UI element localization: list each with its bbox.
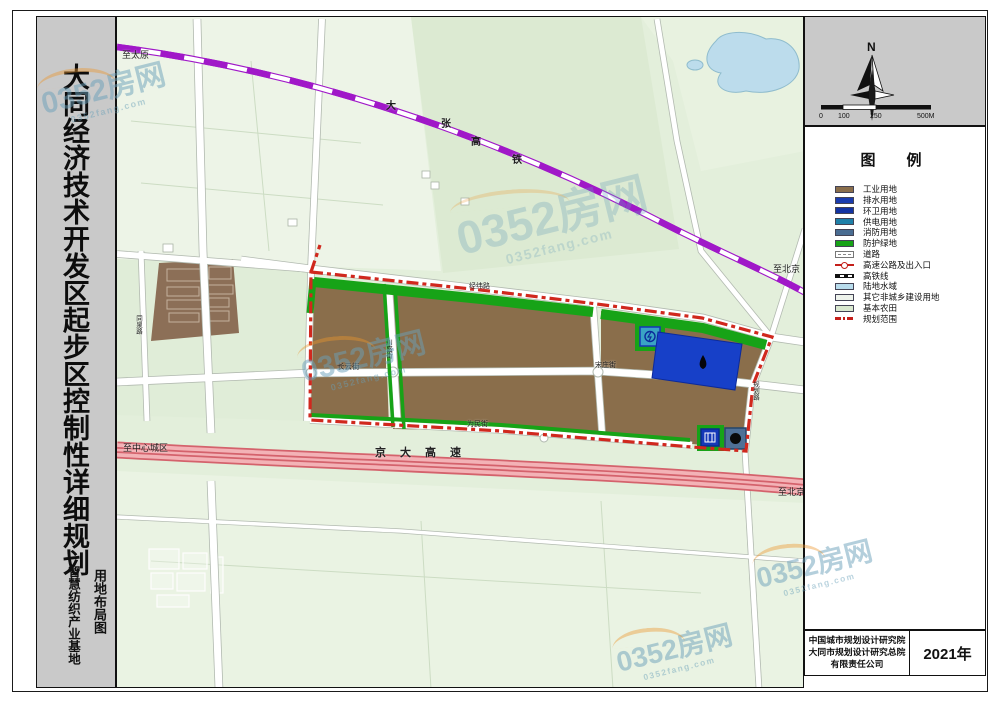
page-title: 大同经济技术开发区起步区控制性详细规划: [55, 63, 94, 576]
label-to-taiyuan: 至太原: [122, 51, 149, 60]
label-road-guihua: 规划路: [751, 381, 758, 401]
label-railway-char: 高: [471, 138, 481, 148]
legend-row: 道路: [805, 249, 985, 260]
legend-row: 规划范围: [805, 314, 985, 325]
farmland-swatch: [835, 305, 854, 312]
drainage-swatch: [835, 197, 854, 204]
power-swatch: [835, 218, 854, 225]
legend-row: 高铁线: [805, 270, 985, 281]
legend-row: 高速公路及出入口: [805, 260, 985, 271]
water-swatch: [835, 283, 854, 290]
legend-panel: 图 例 工业用地 排水用地 环卫用地 供电用地 消防用地 防护绿地 道路 高速公…: [804, 126, 986, 630]
village-block: [151, 259, 239, 341]
fire-parcel: [725, 428, 746, 449]
road-swatch: [835, 251, 854, 258]
legend-row: 排水用地: [805, 195, 985, 206]
label-road-tongquan: 同泉路: [134, 315, 141, 335]
plan-sheet: 大同经济技术开发区起步区控制性详细规划 智慧纺织产业基地 用地布局图: [0, 0, 1000, 706]
legend-items: 工业用地 排水用地 环卫用地 供电用地 消防用地 防护绿地 道路 高速公路及出入…: [805, 184, 985, 324]
map-drawing: [117, 17, 804, 688]
legend-row: 供电用地: [805, 216, 985, 227]
title-bar: 大同经济技术开发区起步区控制性详细规划 智慧纺织产业基地 用地布局图: [36, 16, 116, 688]
svg-text:100: 100: [838, 113, 850, 120]
credits-org: 中国城市规划设计研究院 大同市规划设计研究总院 有限责任公司: [805, 631, 910, 675]
legend-row: 防护绿地: [805, 238, 985, 249]
scale-bar: 0 100 250 500M: [819, 105, 935, 120]
legend-row: 其它非城乡建设用地: [805, 292, 985, 303]
greenbuffer-swatch: [835, 240, 854, 247]
credits-block: 中国城市规划设计研究院 大同市规划设计研究总院 有限责任公司 2021年: [804, 630, 986, 676]
label-to-beijing-hwy: 至北京: [778, 488, 804, 497]
industrial-swatch: [835, 186, 854, 193]
label-road-jingwei: 经纬路: [469, 283, 490, 290]
railway-swatch: [835, 274, 854, 278]
legend-row: 工业用地: [805, 184, 985, 195]
label-railway-char: 铁: [512, 156, 522, 166]
map-type-label: 用地布局图: [90, 569, 109, 634]
label-to-beijing-rail: 至北京: [773, 265, 800, 274]
boundary-swatch: [835, 317, 854, 320]
label-railway-char: 大: [386, 102, 396, 112]
label-road-chuansheng: 川盛街: [384, 339, 391, 359]
north-label: N: [867, 40, 876, 54]
legend-row: 消防用地: [805, 227, 985, 238]
svg-text:0: 0: [819, 113, 823, 120]
label-road-changyun: 长云街: [337, 363, 360, 371]
svg-text:500M: 500M: [917, 113, 935, 120]
north-arrow: N 0 100 250 500M: [805, 17, 985, 125]
legend-row: 基本农田: [805, 303, 985, 314]
nonurban-swatch: [835, 294, 854, 301]
legend-row: 陆地水域: [805, 281, 985, 292]
fire-swatch: [835, 229, 854, 236]
legend-title: 图 例: [805, 149, 985, 170]
sanitation-swatch: [835, 207, 854, 214]
label-to-city-center: 至中心城区: [123, 444, 168, 453]
highway-swatch: [835, 261, 854, 269]
svg-text:250: 250: [870, 113, 882, 120]
map-canvas: 至太原 大 张 高 铁 至北京 经纬路 长云街 川盛街 宋庄街 为民街 同泉路 …: [116, 16, 804, 688]
compass-scale-panel: N 0 100 250 500M: [804, 16, 986, 126]
label-road-weimin: 为民街: [467, 421, 488, 428]
label-railway-char: 张: [441, 120, 451, 130]
credits-year: 2021年: [910, 631, 985, 675]
label-expressway: 京大高速: [375, 448, 475, 459]
label-road-songzhuang: 宋庄街: [595, 362, 616, 369]
page-subtitle: 智慧纺织产业基地: [64, 565, 83, 665]
legend-row: 环卫用地: [805, 206, 985, 217]
